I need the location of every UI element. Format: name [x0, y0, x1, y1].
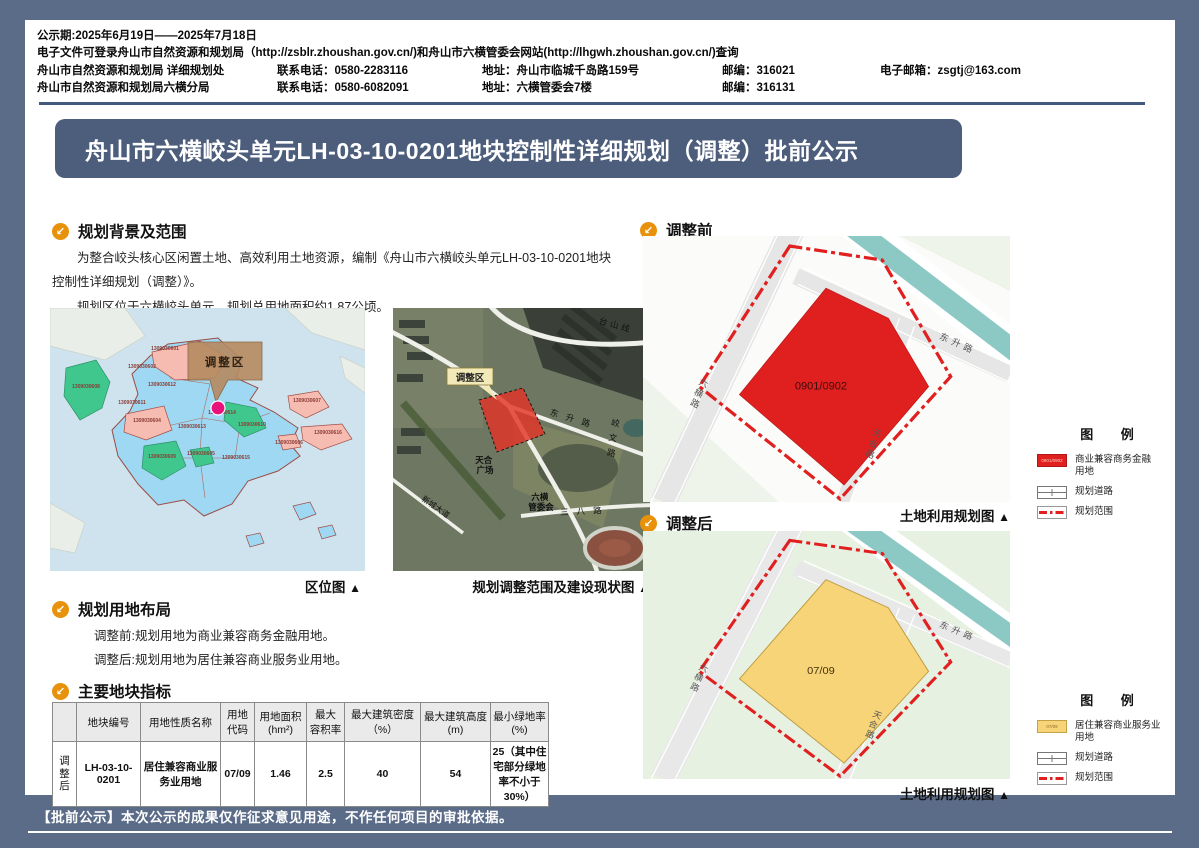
cell-height: 54 [421, 742, 491, 807]
zip-1: 邮编：316021 [722, 63, 880, 80]
legend-item-residential: 07/09 居住兼容商业服务业 用地 [1037, 720, 1179, 745]
section-heading-text: 规划用地布局 [78, 598, 171, 620]
svg-text:1309030608: 1309030608 [72, 384, 100, 390]
parcel-label: 07/09 [807, 666, 835, 678]
section-marker-icon: ↙ [640, 515, 657, 532]
dept-name-1: 舟山市自然资源和规划局 详细规划处 [37, 63, 277, 80]
legend-after: 图 例 07/09 居住兼容商业服务业 用地 规划道路 规划范围 [1037, 690, 1179, 792]
layout-before-line: 调整前:规划用地为商业兼容商务金融用地。 [52, 624, 612, 648]
adjust-area-dot [211, 401, 225, 415]
svg-text:1309030615: 1309030615 [222, 455, 250, 461]
maps-row: 1309030601 1309030602 1309030612 1309030… [50, 308, 650, 571]
svg-text:1309030607: 1309030607 [293, 398, 321, 404]
legend-item-range: 规划范围 [1037, 772, 1179, 785]
range-swatch [1037, 772, 1067, 785]
svg-text:1309030606: 1309030606 [275, 440, 303, 446]
svg-text:1309030602: 1309030602 [128, 364, 156, 370]
land-use-map-before: 0901/0902 东升路 六 横 路 天 合 路 [643, 236, 1010, 502]
header-block: 公示期:2025年6月19日——2025年7月18日 电子文件可登录舟山市自然资… [25, 20, 1175, 105]
triangle-icon: ▲ [998, 788, 1010, 802]
address-1: 地址：舟山市临城千岛路159号 [482, 63, 722, 80]
col-header: 最大建筑高度 (m) [421, 703, 491, 742]
cell-land-use: 居住兼容商业服务业用地 [141, 742, 221, 807]
col-header: 用地 代码 [221, 703, 255, 742]
svg-text:1309030616: 1309030616 [314, 430, 342, 436]
legend-item-commercial: 0901/0902 商业兼容商务金融 用地 [1037, 454, 1179, 479]
land-use-map-after: 07/09 东升路 六 横 路 天 合 路 [643, 531, 1010, 779]
col-header: 用地性质名称 [141, 703, 221, 742]
table-header-row: 地块编号 用地性质名称 用地 代码 用地面积 (hm²) 最大 容积率 最大建筑… [53, 703, 549, 742]
small-map-captions: 区位图 ▲ 规划调整范围及建设现状图 ▲ [50, 576, 650, 596]
section-layout-heading: ↙ 规划用地布局 [52, 598, 171, 620]
email-1: 电子邮箱：zsgtj@163.com [880, 63, 1021, 80]
layout-text: 调整前:规划用地为商业兼容商务金融用地。 调整后:规划用地为居住兼容商业服务业用… [52, 624, 612, 673]
cell-density: 40 [345, 742, 421, 807]
svg-text:1309030604: 1309030604 [133, 418, 161, 424]
section-heading-text: 规划背景及范围 [78, 220, 187, 242]
caption-land-use-after: 土地利用规划图 ▲ [643, 783, 1010, 803]
footer-disclaimer: 【批前公示】本次公示的成果仅作征求意见用途，不作任何项目的审批依据。 [37, 806, 513, 826]
svg-text:1309030613: 1309030613 [178, 424, 206, 430]
cell-far: 2.5 [307, 742, 345, 807]
cell-area: 1.46 [255, 742, 307, 807]
background-para-1: 为整合峧头核心区闲置土地、高效利用土地资源，编制《舟山市六横峧头单元LH-03-… [52, 246, 620, 295]
layout-after-line: 调整后:规划用地为居住兼容商业服务业用地。 [52, 648, 612, 672]
svg-text:六横 管委会: 六横 管委会 [528, 492, 554, 512]
phone-1: 联系电话：0580-2283116 [277, 63, 482, 80]
red-swatch: 0901/0902 [1037, 454, 1067, 467]
phone-2: 联系电话：0580-6082091 [277, 80, 482, 97]
publicity-period: 公示期:2025年6月19日——2025年7月18日 [37, 28, 1161, 45]
range-swatch [1037, 506, 1067, 519]
adjust-area-label: 调整区 [205, 355, 246, 369]
adjust-area-label: 调整区 [456, 372, 485, 384]
notice-page: 公示期:2025年6月19日——2025年7月18日 电子文件可登录舟山市自然资… [25, 20, 1175, 795]
indicator-table: 地块编号 用地性质名称 用地 代码 用地面积 (hm²) 最大 容积率 最大建筑… [52, 702, 549, 807]
table-row: 调 整 后 LH-03-10-0201 居住兼容商业服务业用地 07/09 1.… [53, 742, 549, 807]
svg-text:1309030605: 1309030605 [187, 451, 215, 457]
page-title: 舟山市六横峧头单元LH-03-10-0201地块控制性详细规划（调整）批前公示 [55, 119, 962, 178]
svg-text:1309030612: 1309030612 [148, 382, 176, 388]
section-indicators-heading: ↙ 主要地块指标 [52, 680, 171, 702]
legend-title: 图 例 [1037, 690, 1179, 709]
caption-satellite-map: 规划调整范围及建设现状图 ▲ [365, 576, 650, 596]
col-header: 用地面积 (hm²) [255, 703, 307, 742]
section-background-heading: ↙ 规划背景及范围 [52, 220, 187, 242]
dept-name-2: 舟山市自然资源和规划局六横分局 [37, 80, 277, 97]
svg-text:1309030610: 1309030610 [238, 422, 266, 428]
legend-item-road: 规划道路 [1037, 486, 1179, 499]
section-marker-icon: ↙ [52, 683, 69, 700]
cell-green-rate: 25（其中住宅部分绿地率不小于30%） [491, 742, 549, 807]
contact-row-1: 舟山市自然资源和规划局 详细规划处 联系电话：0580-2283116 地址：舟… [37, 63, 1161, 80]
svg-text:1309030609: 1309030609 [148, 454, 176, 460]
col-header: 地块编号 [77, 703, 141, 742]
caption-location-map: 区位图 ▲ [50, 576, 365, 596]
satellite-map: 调整区 台山线 东升路 峧 文 路 三八路 新城大道 天合 广场 六横 管委会 [393, 308, 650, 571]
col-header: 最大 容积率 [307, 703, 345, 742]
road-swatch [1037, 486, 1067, 499]
legend-before: 图 例 0901/0902 商业兼容商务金融 用地 规划道路 规划范围 [1037, 424, 1179, 526]
yellow-swatch: 07/09 [1037, 720, 1067, 733]
section-heading-text: 主要地块指标 [78, 680, 171, 702]
row-label: 调 整 后 [53, 742, 77, 807]
cell-use-code: 07/09 [221, 742, 255, 807]
col-header: 最小绿地率 (%) [491, 703, 549, 742]
location-map: 1309030601 1309030602 1309030612 1309030… [50, 308, 365, 571]
header-divider [39, 102, 1145, 105]
contact-row-2: 舟山市自然资源和规划局六横分局 联系电话：0580-6082091 地址：六横管… [37, 80, 1161, 97]
triangle-icon: ▲ [998, 510, 1010, 524]
col-header [53, 703, 77, 742]
svg-text:天合 广场: 天合 广场 [475, 455, 494, 475]
access-info: 电子文件可登录舟山市自然资源和规划局（http://zsblr.zhoushan… [37, 45, 1161, 62]
svg-text:1309030611: 1309030611 [118, 400, 146, 406]
section-marker-icon: ↙ [52, 223, 69, 240]
legend-item-range: 规划范围 [1037, 506, 1179, 519]
svg-text:1309030601: 1309030601 [151, 346, 179, 352]
section-marker-icon: ↙ [52, 601, 69, 618]
zip-2: 邮编：316131 [722, 80, 880, 97]
col-header: 最大建筑密度（%） [345, 703, 421, 742]
triangle-icon: ▲ [349, 581, 361, 595]
footer-divider [28, 831, 1172, 833]
legend-item-road: 规划道路 [1037, 752, 1179, 765]
road-swatch [1037, 752, 1067, 765]
cell-parcel-code: LH-03-10-0201 [77, 742, 141, 807]
parcel-label: 0901/0902 [795, 381, 847, 393]
address-2: 地址：六横管委会7楼 [482, 80, 722, 97]
legend-title: 图 例 [1037, 424, 1179, 443]
